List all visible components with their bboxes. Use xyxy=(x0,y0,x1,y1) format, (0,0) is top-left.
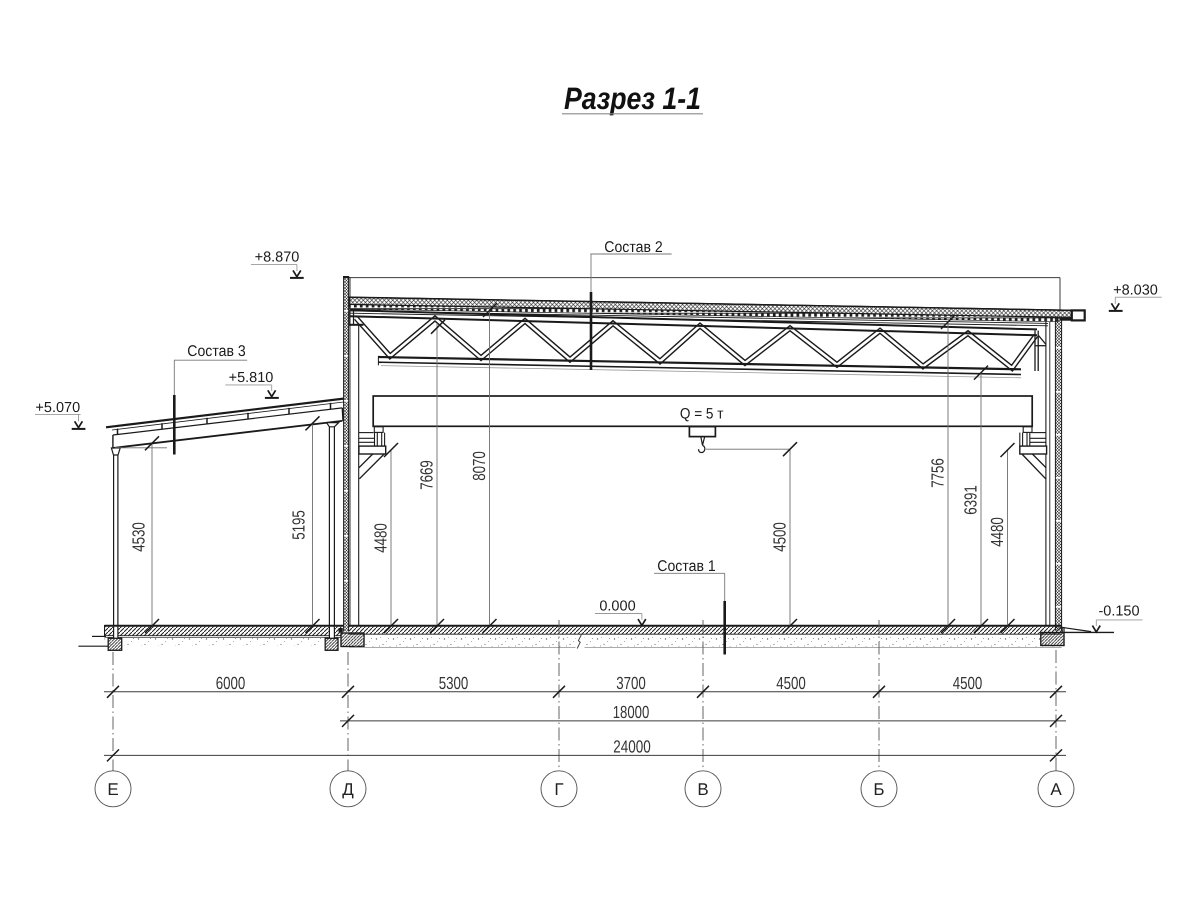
svg-text:В: В xyxy=(697,780,708,799)
svg-text:Д: Д xyxy=(342,780,354,799)
svg-text:Б: Б xyxy=(873,780,884,799)
svg-text:24000: 24000 xyxy=(613,737,651,757)
svg-text:18000: 18000 xyxy=(613,702,650,722)
svg-text:5300: 5300 xyxy=(439,673,469,693)
svg-text:6000: 6000 xyxy=(216,673,246,693)
svg-text:5195: 5195 xyxy=(289,510,309,540)
svg-text:Состав 2: Состав 2 xyxy=(604,239,662,256)
svg-text:7756: 7756 xyxy=(928,458,948,488)
svg-text:Г: Г xyxy=(554,780,563,799)
svg-text:0.000: 0.000 xyxy=(599,598,635,614)
svg-text:Разрез 1-1: Разрез 1-1 xyxy=(564,81,701,116)
svg-text:4530: 4530 xyxy=(129,522,149,552)
svg-text:4480: 4480 xyxy=(987,517,1007,547)
svg-text:А: А xyxy=(1050,780,1062,799)
svg-text:4500: 4500 xyxy=(770,522,790,552)
svg-text:4500: 4500 xyxy=(776,673,806,693)
svg-text:+5.810: +5.810 xyxy=(229,370,274,386)
svg-text:Q = 5 т: Q = 5 т xyxy=(680,406,724,423)
svg-text:3700: 3700 xyxy=(616,673,646,693)
svg-text:8070: 8070 xyxy=(469,451,489,481)
svg-text:4500: 4500 xyxy=(953,673,983,693)
svg-text:Е: Е xyxy=(107,780,118,799)
svg-text:6391: 6391 xyxy=(961,485,981,515)
svg-text:Состав 3: Состав 3 xyxy=(187,343,245,360)
svg-text:+8.870: +8.870 xyxy=(255,250,300,266)
svg-text:+8.030: +8.030 xyxy=(1113,283,1158,299)
svg-text:4480: 4480 xyxy=(371,523,391,553)
svg-text:+5.070: +5.070 xyxy=(35,400,80,416)
svg-text:-0.150: -0.150 xyxy=(1098,604,1139,620)
svg-text:Состав 1: Состав 1 xyxy=(657,558,715,575)
svg-text:7669: 7669 xyxy=(417,460,437,490)
